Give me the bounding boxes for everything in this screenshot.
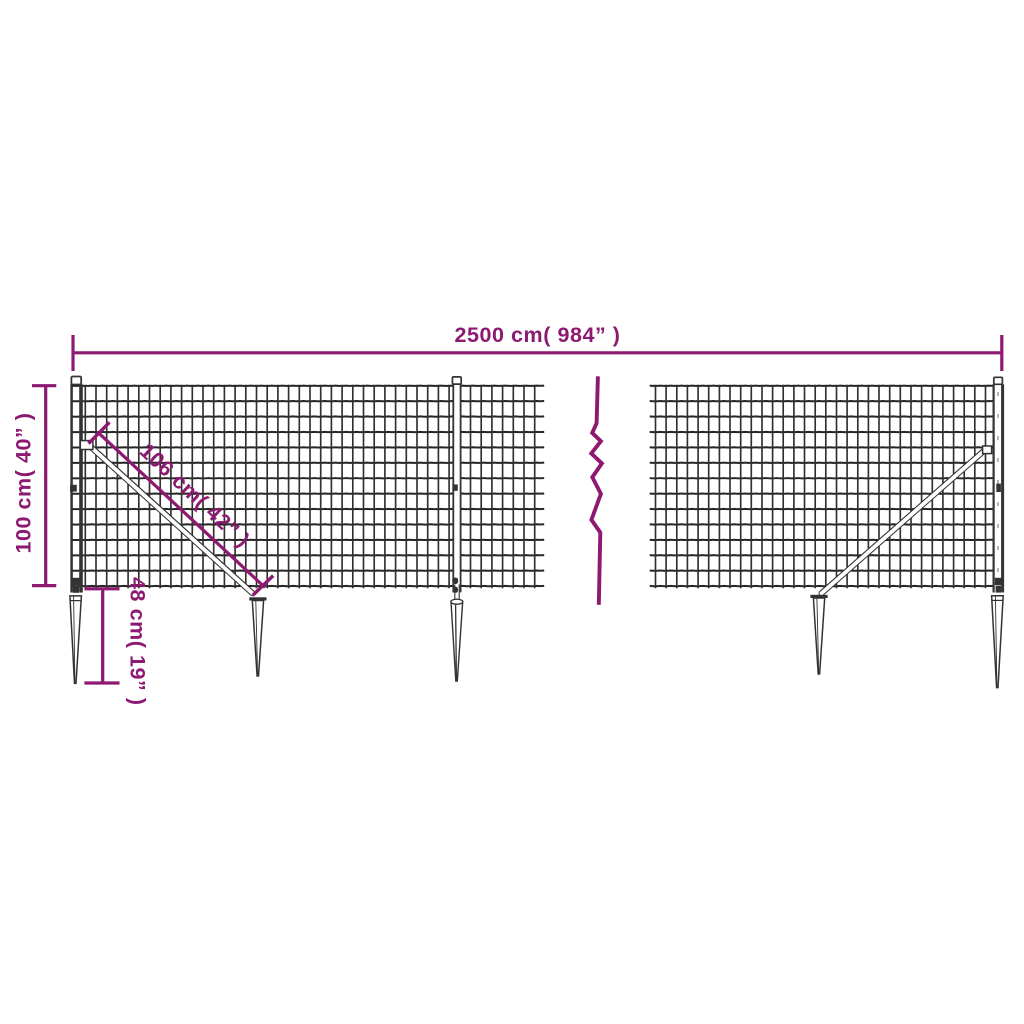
- svg-text:2500 cm( 984” ): 2500 cm( 984” ): [454, 323, 620, 347]
- svg-text:48 cm( 19” ): 48 cm( 19” ): [126, 577, 150, 706]
- svg-text:100 cm( 40” ): 100 cm( 40” ): [11, 413, 35, 554]
